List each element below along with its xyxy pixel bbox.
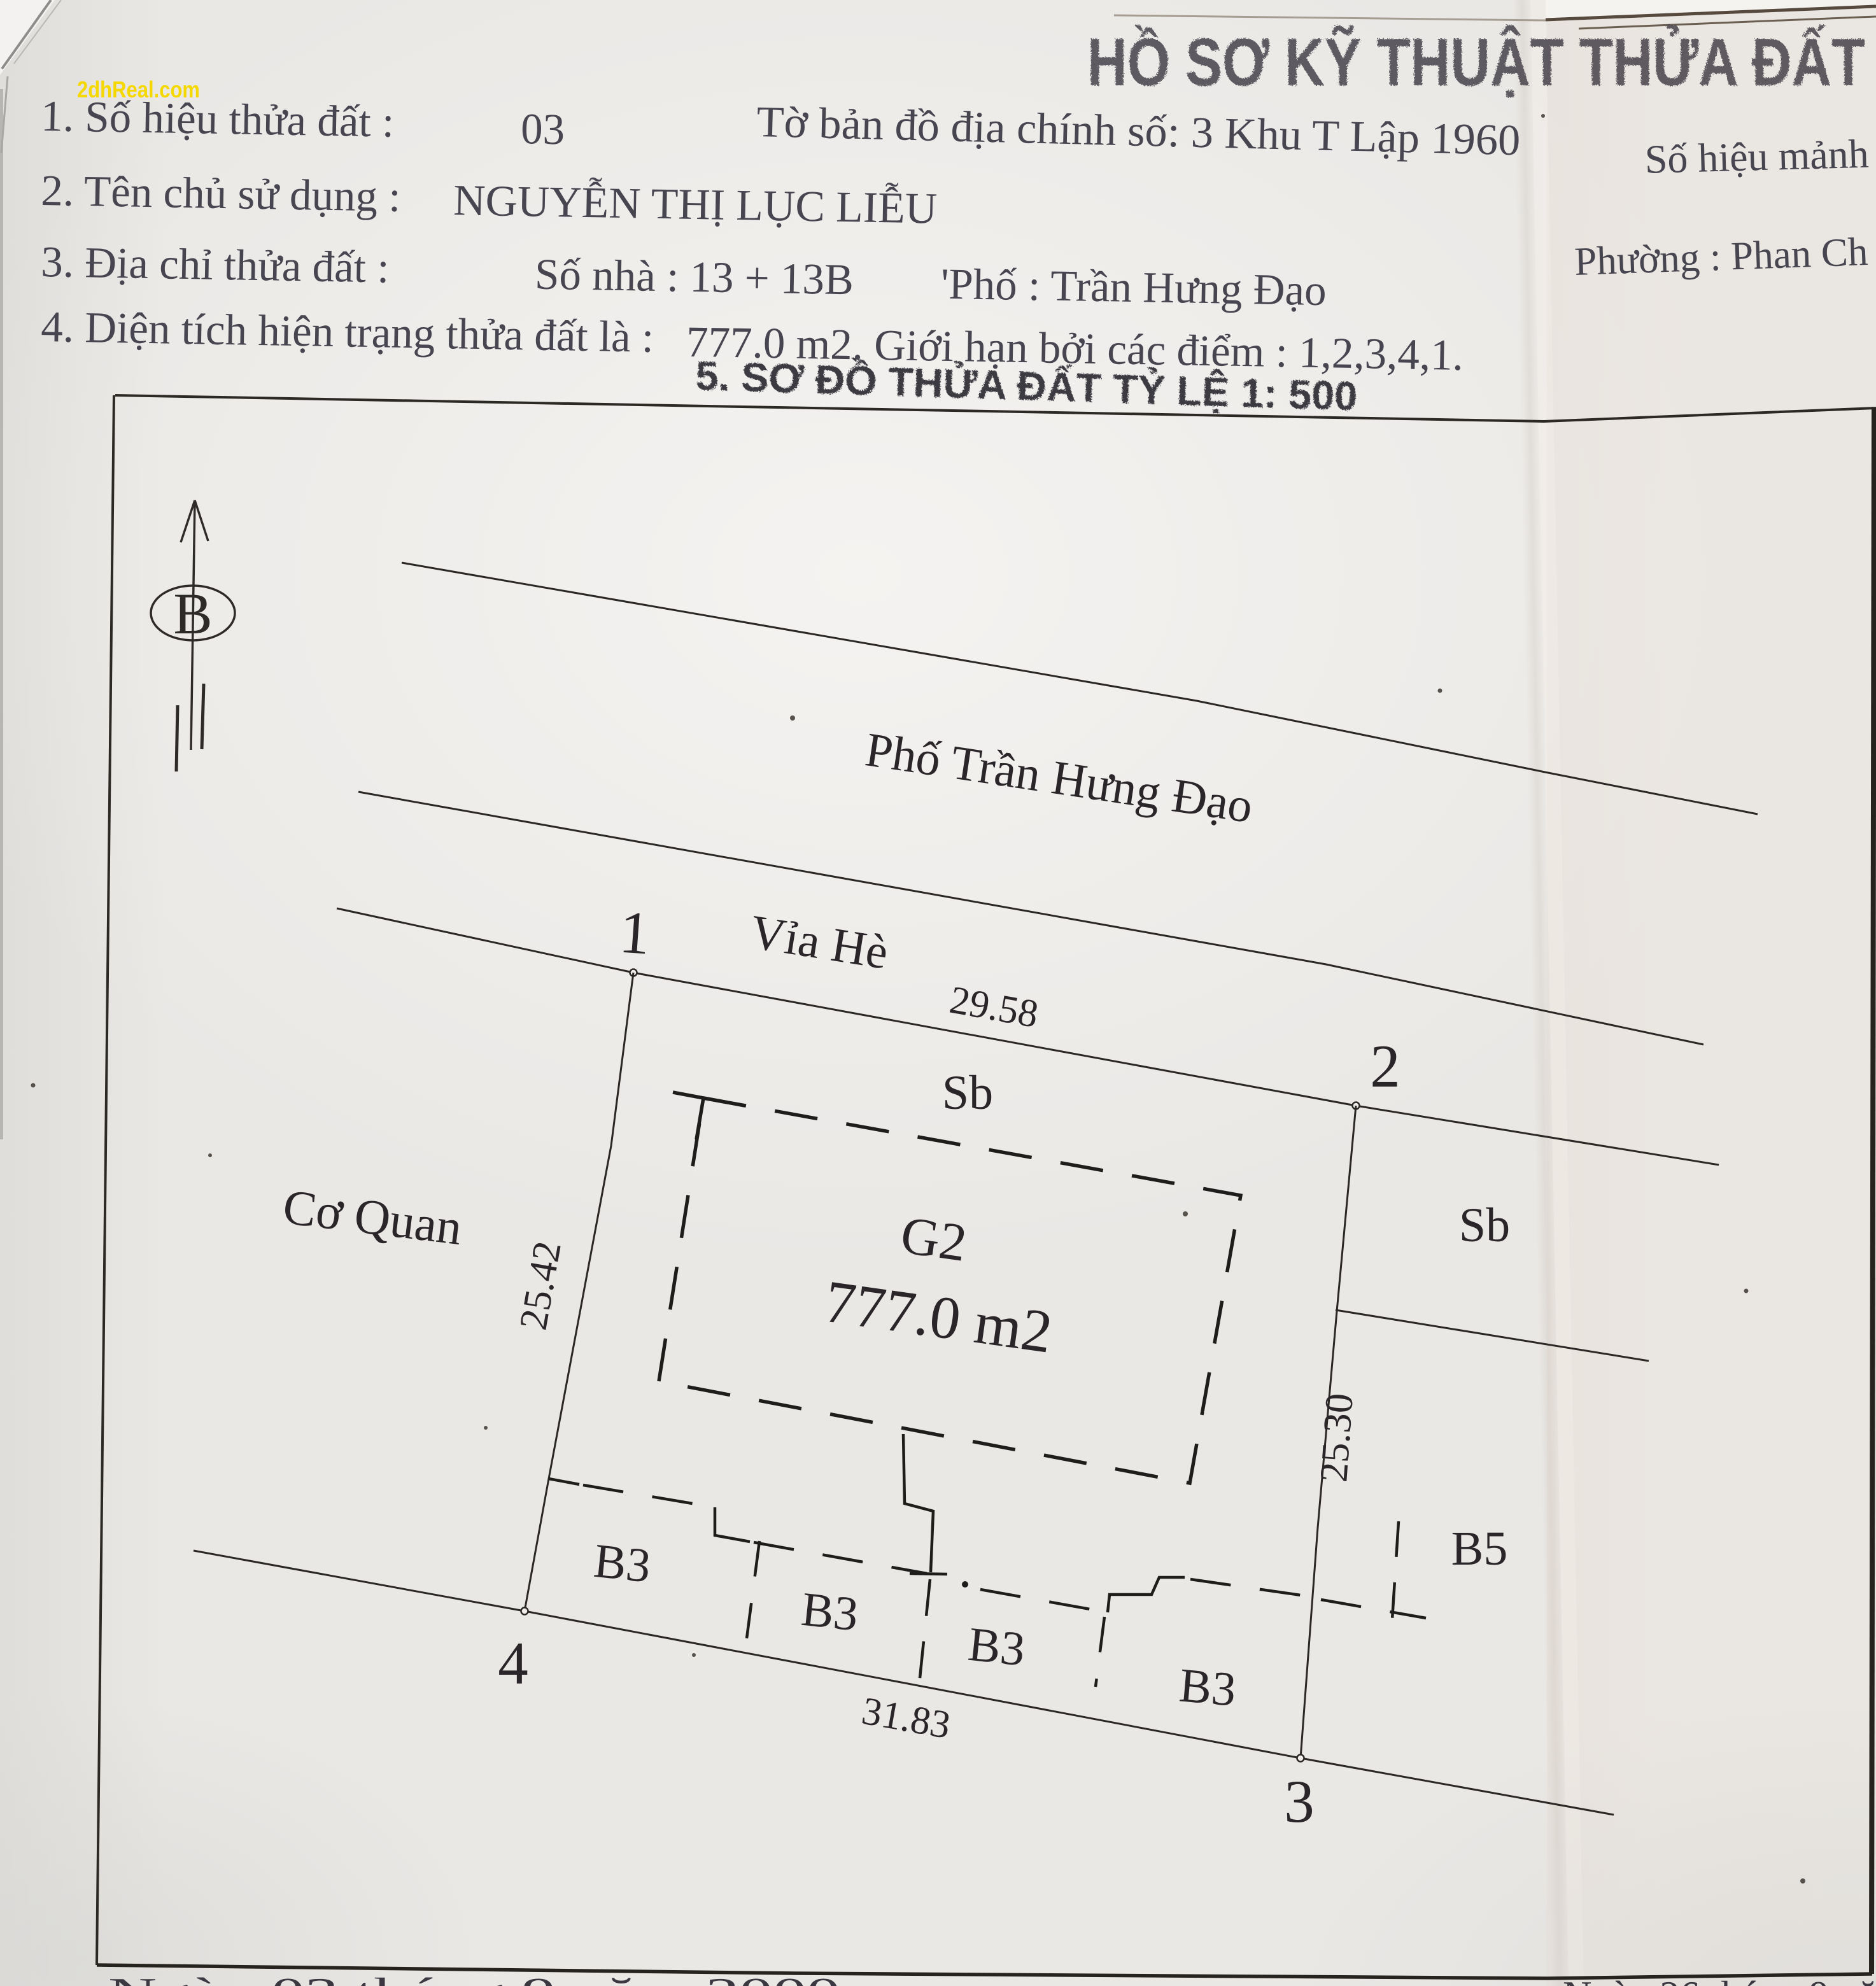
svg-text:2: 2 [1370,1032,1400,1100]
svg-text:B3: B3 [1177,1658,1238,1716]
svg-text:NGUYỄN THỊ LỤC LIỄU: NGUYỄN THỊ LỤC LIỄU [453,174,938,232]
svg-text:B3: B3 [591,1534,653,1593]
svg-text:Sb: Sb [1459,1199,1510,1252]
svg-text:Ngày 03 tháng 9 năm: Ngày 03 tháng 9 năm 2000 [108,1970,840,1986]
svg-text:B3: B3 [799,1582,861,1642]
svg-text:2dhReal.com: 2dhReal.com [77,76,200,102]
svg-text:3. Địa chỉ thửa đất :: 3. Địa chỉ thửa đất : [41,237,390,292]
svg-text:Số nhà : 13 + 13B: Số nhà : 13 + 13B [535,250,854,304]
svg-text:Số hiệu mảnh: Số hiệu mảnh [1644,131,1870,182]
svg-text:1: 1 [617,898,652,968]
svg-text:4: 4 [498,1630,528,1697]
svg-text:03: 03 [521,104,565,153]
svg-text:'Phố : Trần Hưng Đạo: 'Phố : Trần Hưng Đạo [940,260,1327,315]
svg-text:B5: B5 [1451,1522,1508,1575]
svg-text:B: B [173,581,212,646]
svg-text:25.30: 25.30 [1312,1392,1362,1484]
svg-text:B3: B3 [966,1617,1027,1677]
svg-text:2. Tên chủ sử dụng :: 2. Tên chủ sử dụng : [41,166,401,221]
svg-text:HỒ SƠ KỸ THUẬT THỬA ĐẤT: HỒ SƠ KỸ THUẬT THỬA ĐẤT [1087,24,1865,100]
svg-text:Ngày 26 tháng 9 năm: Ngày 26 tháng 9 năm [1563,1973,1876,1986]
svg-text:Sb: Sb [942,1066,993,1120]
svg-text:G2: G2 [898,1206,971,1273]
svg-text:3: 3 [1284,1768,1315,1835]
